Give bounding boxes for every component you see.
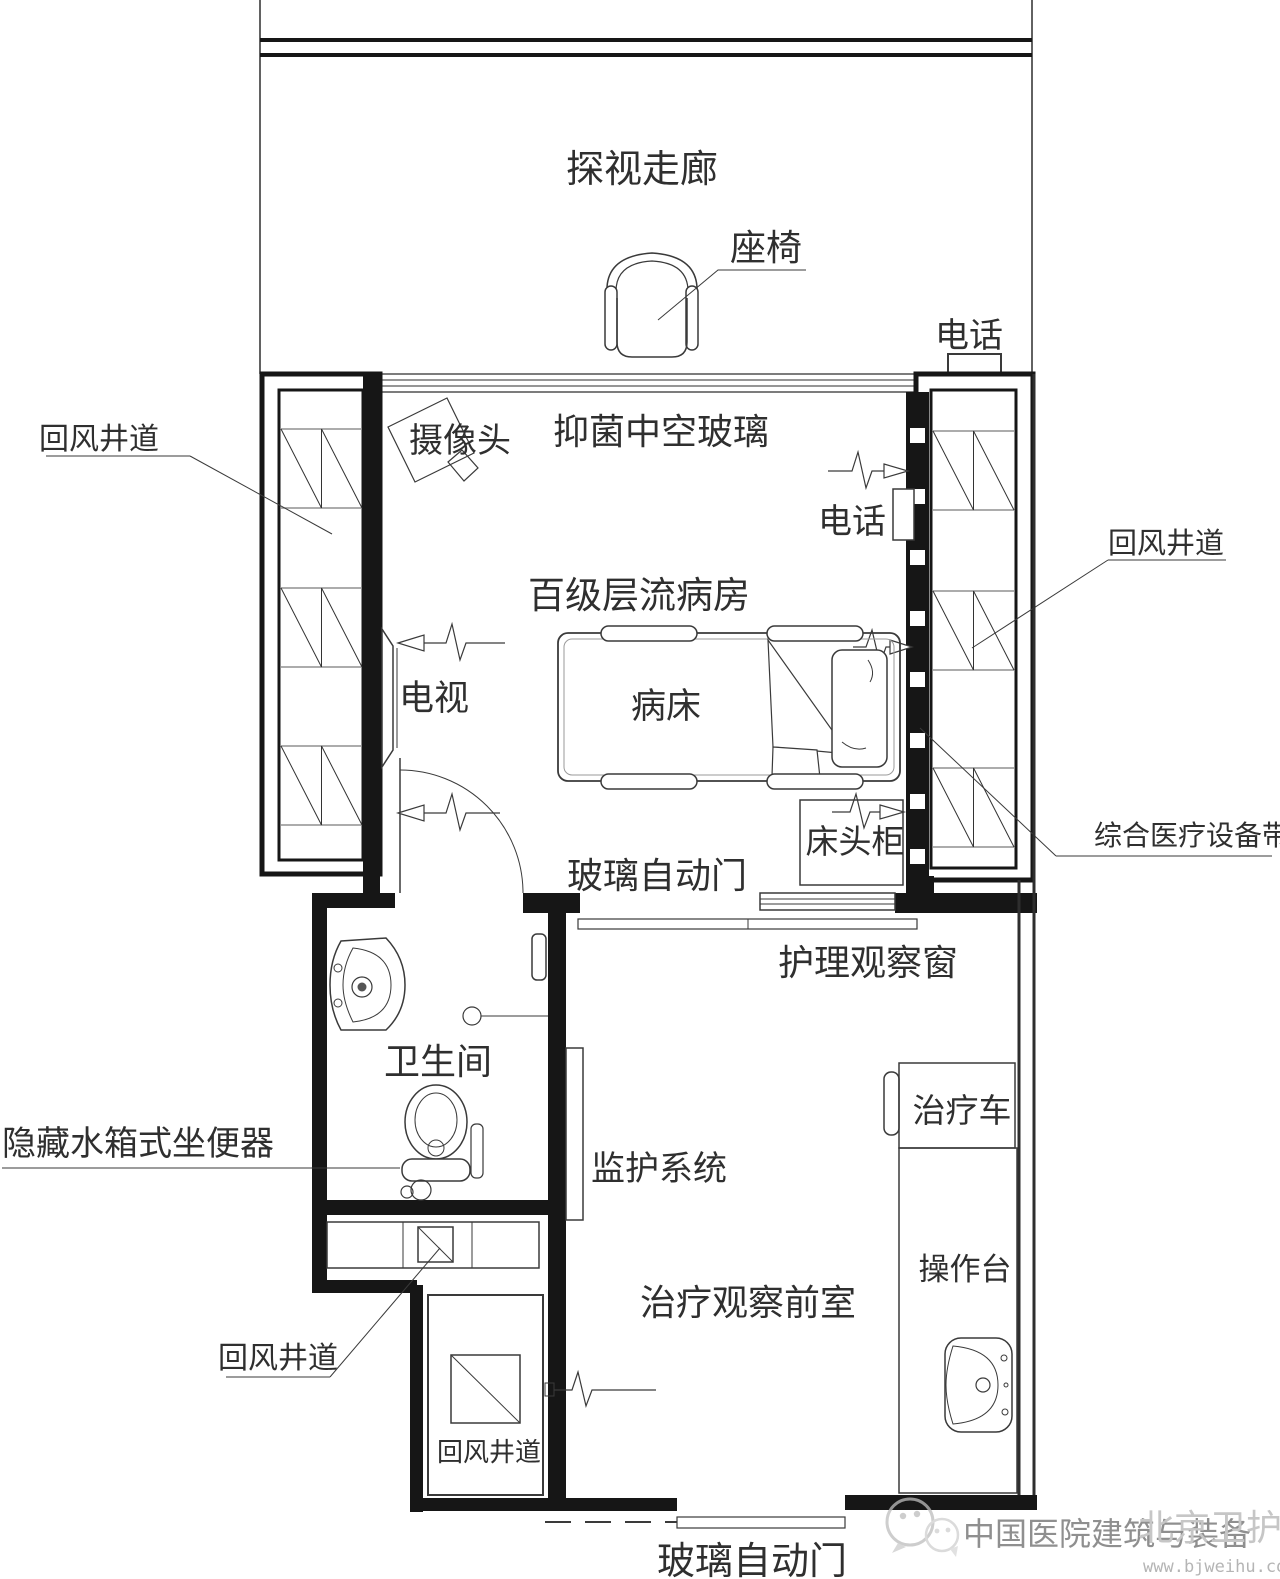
cabinet-label: 床头柜 (806, 822, 905, 861)
nursing-observation-window (760, 893, 895, 910)
auto-door-room-strip (578, 919, 917, 929)
console-label: 操作台 (919, 1252, 1012, 1288)
console-sink-icon (945, 1338, 1012, 1432)
outlet-symbol-door (398, 794, 500, 830)
floor-plan-page: 探视走廊 座椅 电话 摄像头 抑菌中空玻璃 回风井道 电话 回风井道 百级层流病… (0, 0, 1280, 1579)
chair-icon (605, 253, 698, 357)
outlet-symbol-phone (828, 452, 908, 488)
auto-door-entry-label: 玻璃自动门 (657, 1539, 847, 1579)
shaft-bottom-label: 回风井道 (437, 1438, 541, 1468)
phone-room-icon (893, 489, 914, 540)
corridor-label: 探视走廊 (566, 147, 718, 191)
return-air-shaft-right (916, 374, 1033, 880)
treatment-cart-label: 治疗车 (913, 1091, 1012, 1130)
ward-label: 百级层流病房 (528, 574, 750, 617)
glass-label: 抑菌中空玻璃 (553, 412, 769, 453)
auto-door-entry-strip (545, 1517, 845, 1528)
tv-label: 电视 (399, 679, 469, 719)
equipment-belt-label: 综合医疗设备带 (1094, 819, 1280, 852)
camera-label: 摄像头 (409, 421, 511, 461)
auto-door-room-label: 玻璃自动门 (567, 856, 747, 897)
outlet-symbol-tv (398, 624, 505, 660)
return-air-duct-strip (312, 1215, 539, 1293)
return-air-shaft-left (262, 374, 380, 874)
floor-plan-drawing: 探视走廊 座椅 电话 摄像头 抑菌中空玻璃 回风井道 电话 回风井道 百级层流病… (0, 0, 1280, 1579)
antibacterial-glass-wall (377, 374, 916, 392)
hidden-toilet-label: 隐藏水箱式坐便器 (2, 1124, 274, 1164)
wall-fixture-icon (463, 1007, 548, 1025)
chair-leader-line (658, 270, 806, 320)
shaft-right-label: 回风井道 (1108, 526, 1224, 560)
nursing-window-label: 护理观察窗 (778, 943, 958, 984)
bathroom-label: 卫生间 (384, 1042, 492, 1083)
bed-label: 病床 (631, 687, 701, 727)
watermark-overlay: 北京卫护 (1138, 1508, 1280, 1549)
watermark-url: www.bjweihu.com (1143, 1557, 1280, 1577)
return-air-shaft-left-leader (46, 456, 332, 534)
return-air-shaft-bottom (410, 1285, 543, 1512)
watermark: 中国医院建筑与装备 北京卫护 www.bjweihu.com (887, 1499, 1280, 1577)
return-air-shaft-right-leader (972, 560, 1226, 648)
toilet-icon (401, 1085, 483, 1200)
phone-room-label: 电话 (818, 502, 886, 542)
phone-top-icon (948, 354, 1001, 373)
monitoring-label: 监护系统 (591, 1149, 727, 1189)
hospital-bed-icon (558, 626, 900, 789)
work-console (899, 1148, 1017, 1493)
tv-icon (382, 629, 397, 767)
phone-top-label: 电话 (935, 316, 1003, 356)
return-duct-label: 回风井道 (218, 1341, 338, 1376)
shaft-left-label: 回风井道 (39, 422, 159, 457)
anteroom-label: 治疗观察前室 (640, 1283, 856, 1324)
sink-icon (330, 938, 405, 1030)
monitoring-console (566, 1048, 583, 1220)
chair-label: 座椅 (730, 228, 802, 269)
